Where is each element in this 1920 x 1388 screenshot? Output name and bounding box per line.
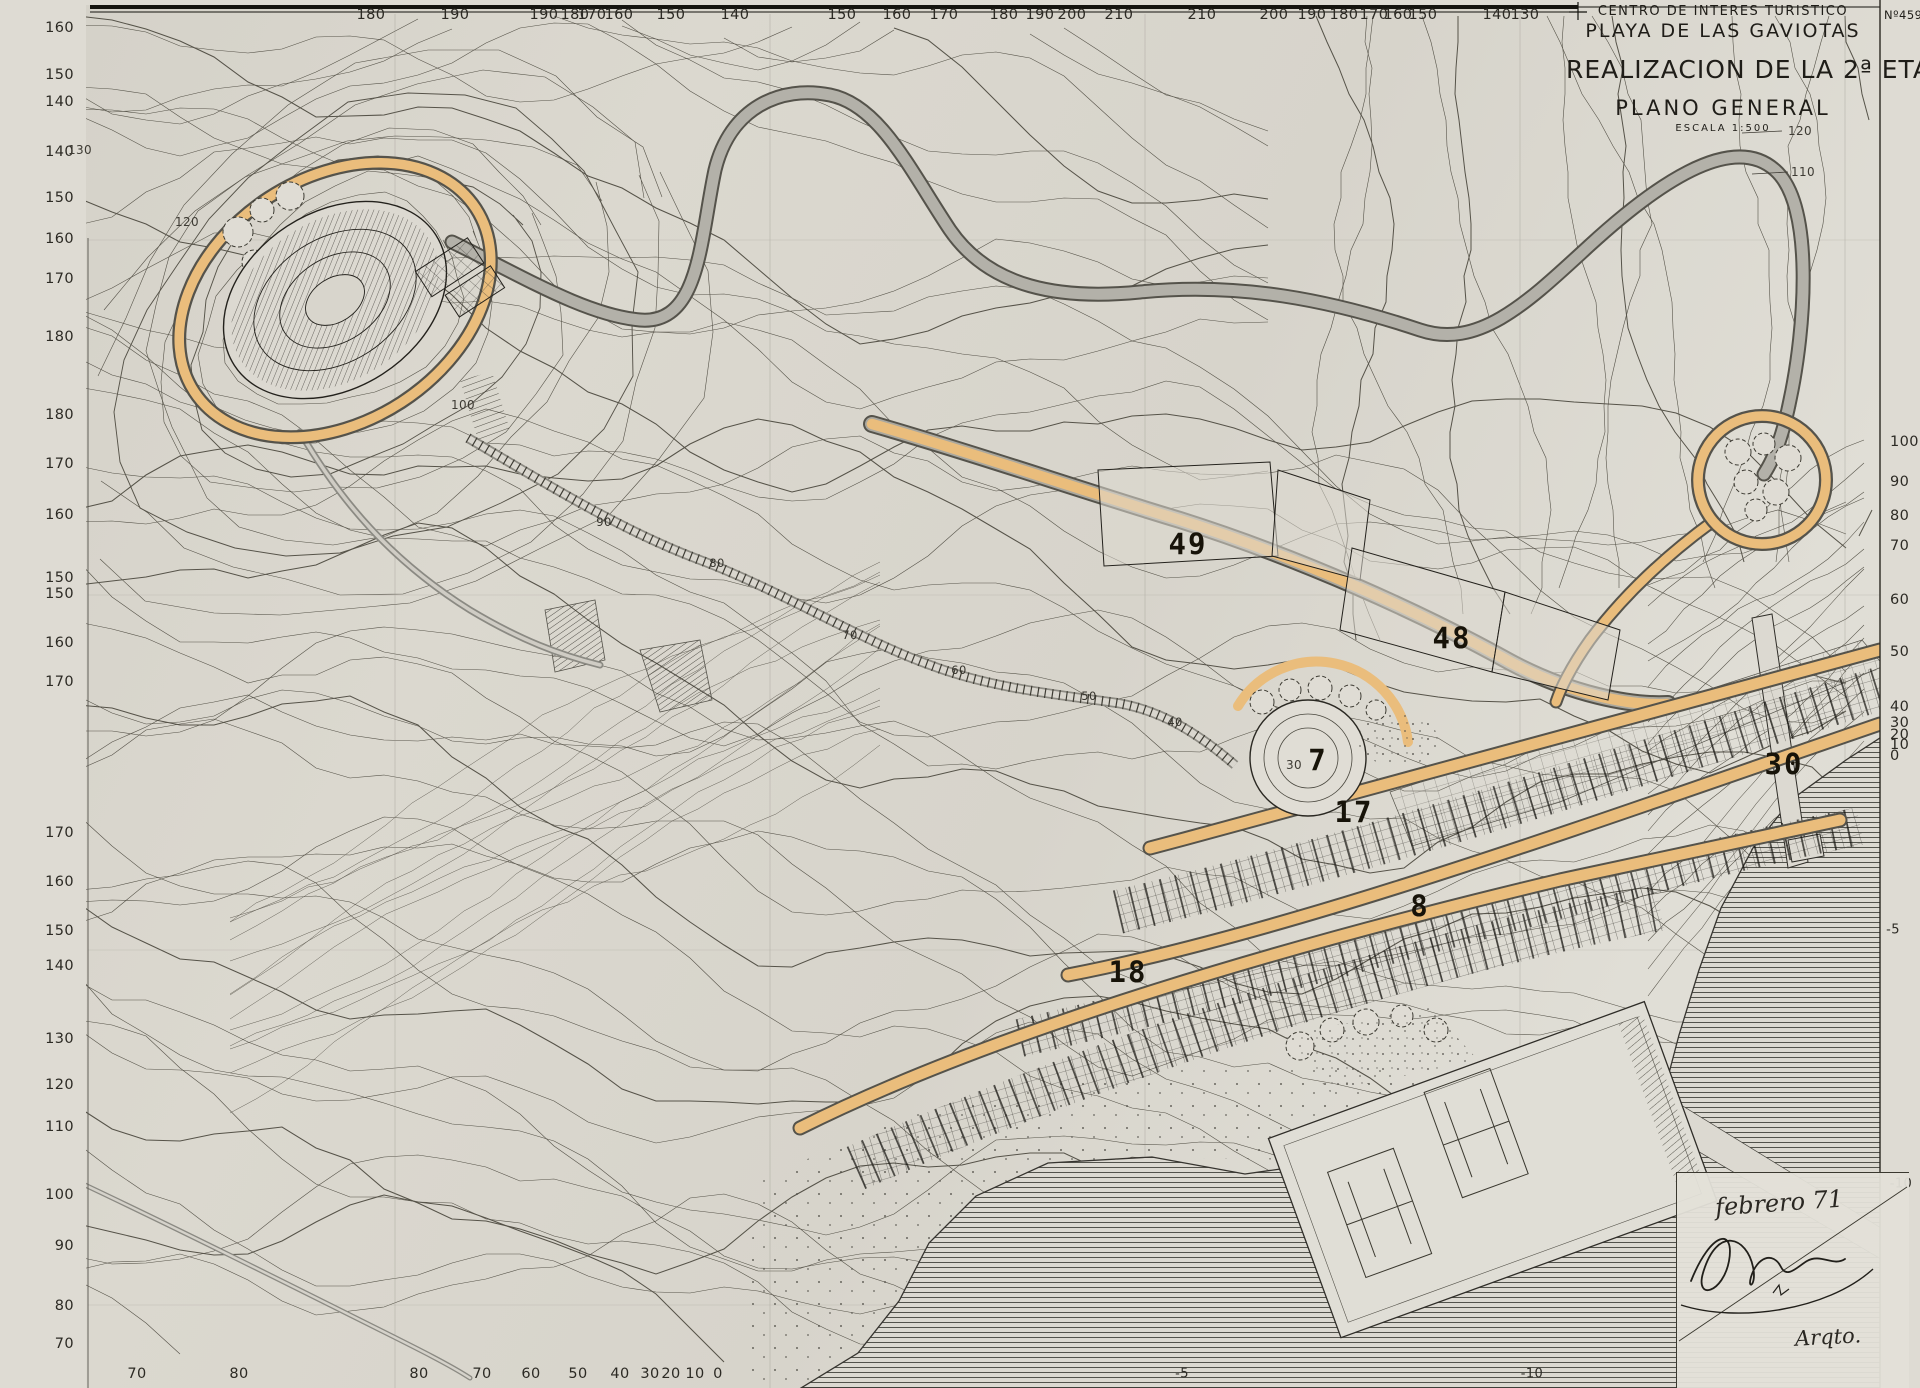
- plan-sheet: 1801901901801701601501401501601701801902…: [0, 0, 1920, 1388]
- architect-signature: [1677, 1173, 1909, 1388]
- site-plan-drawing: [0, 0, 1920, 1388]
- title-line-2: PLAYA DE LAS GAVIOTAS: [1566, 20, 1880, 42]
- signature-block: febrero 71 Arqto.: [1676, 1172, 1909, 1388]
- title-line-4: PLANO GENERAL: [1566, 96, 1880, 120]
- architect-credential: Arqto.: [1794, 1323, 1861, 1350]
- scale-note: ESCALA 1:500: [1566, 123, 1880, 134]
- title-line-1: CENTRO DE INTERES TURISTICO: [1566, 4, 1880, 19]
- title-block: CENTRO DE INTERES TURISTICO PLAYA DE LAS…: [1566, 4, 1880, 134]
- title-line-3: REALIZACION DE LA 2ª ETAPA: [1566, 55, 1880, 84]
- sheet-number: Nº459: [1884, 8, 1920, 22]
